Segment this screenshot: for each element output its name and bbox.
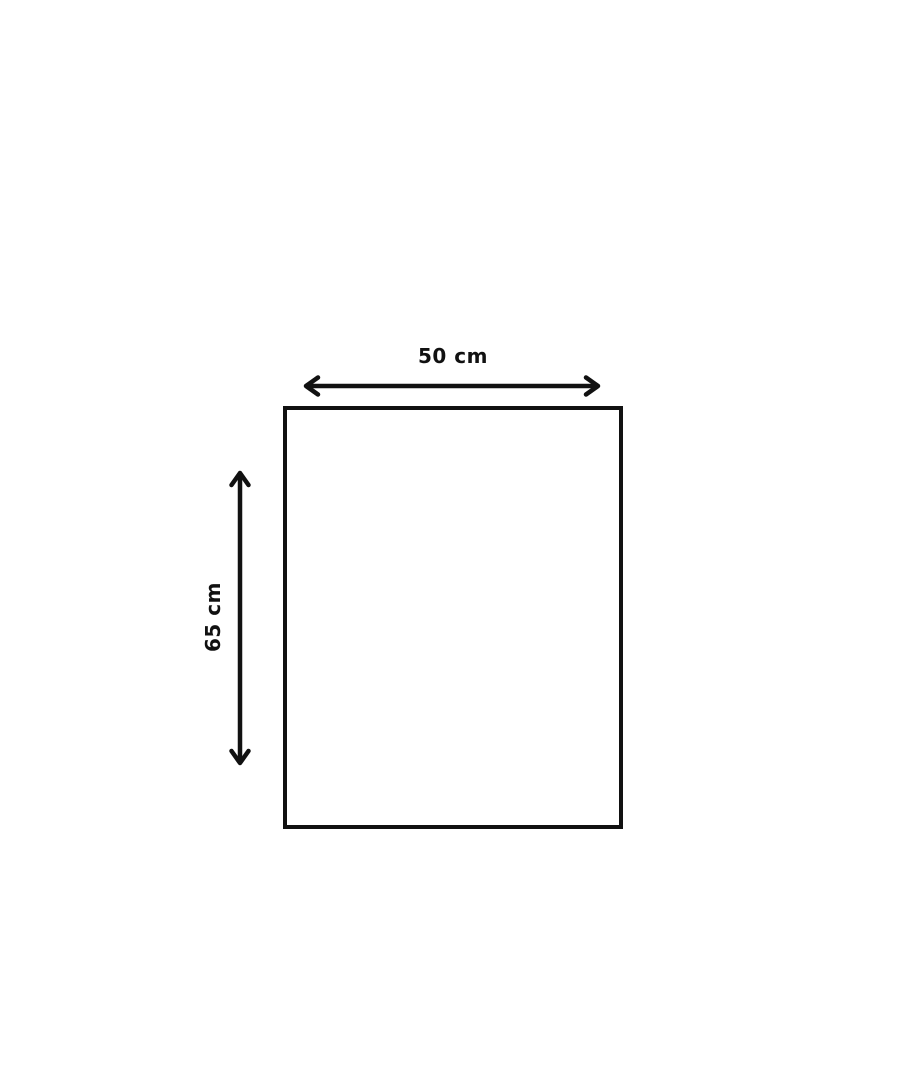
diagram-canvas: 50 cm 65 cm: [0, 0, 908, 1080]
height-dimension-label: 65 cm: [201, 547, 225, 687]
width-dimension-arrow: [300, 373, 604, 399]
height-dimension-arrow: [227, 467, 253, 769]
rectangle-shape: [283, 406, 623, 829]
width-dimension-label: 50 cm: [383, 344, 523, 368]
